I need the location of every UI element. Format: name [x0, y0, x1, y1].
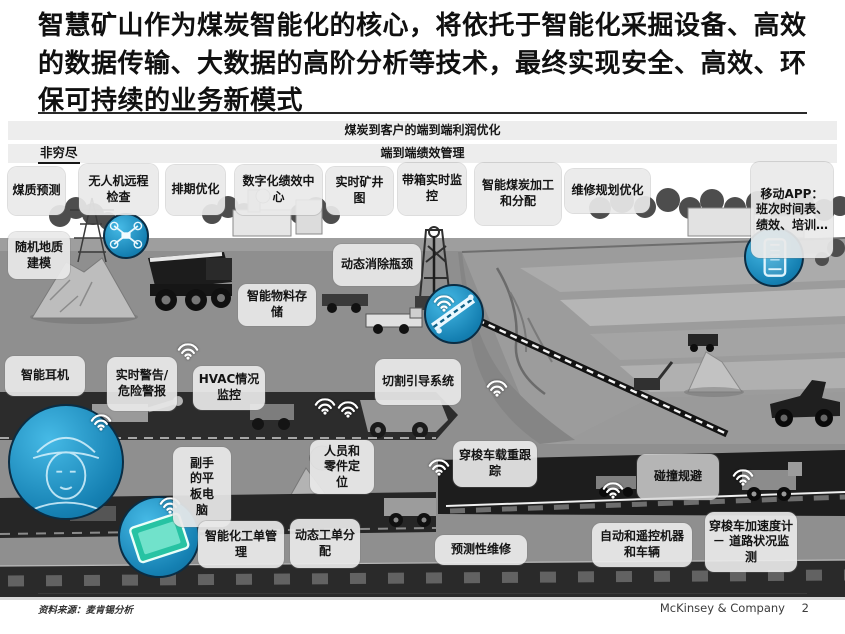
- callout-maintenance-planning: 维修规划优化: [565, 169, 650, 213]
- callout-predictive-maintenance: 预测性维修: [435, 535, 527, 565]
- callout-shuttle-accelerometer-road: 穿梭车加速度计 － 道路状况监测: [705, 512, 797, 572]
- callout-smart-headset: 智能耳机: [5, 356, 85, 396]
- callout-realtime-mine-map: 实时矿井图: [326, 167, 393, 215]
- callout-digital-performance-center: 数字化绩效中心: [235, 165, 322, 215]
- page-number: 2: [802, 601, 809, 615]
- not-exhaustive-note: 非穷尽: [38, 145, 80, 164]
- callout-hvac-monitoring: HVAC情况监控: [193, 366, 265, 410]
- wifi-icon: [177, 343, 199, 360]
- callout-smart-coal-processing: 智能煤炭加工和分配: [475, 163, 561, 225]
- source-note: 资料来源：麦肯锡分析: [38, 602, 133, 616]
- callout-scheduling-optimization: 排期优化: [166, 165, 225, 215]
- callout-coal-quality-prediction: 煤质预测: [8, 167, 65, 215]
- callout-personnel-parts-positioning: 人员和零件定位: [310, 440, 374, 494]
- callout-mobile-app: 移动APP：班次时间表、绩效、培训…: [751, 162, 833, 258]
- callout-dynamic-debottlenecking: 动态消除瓶颈: [333, 244, 421, 286]
- presentation-slide: 智慧矿山作为煤炭智能化的核心，将依托于智能化采掘设备、高效的数据传输、大数据的高…: [0, 0, 845, 634]
- drone-closeup: [103, 213, 149, 259]
- wifi-icon: [732, 469, 754, 486]
- callout-dynamic-workorder-dispatch: 动态工单分配: [290, 519, 360, 568]
- slide-title: 智慧矿山作为煤炭智能化的核心，将依托于智能化采掘设备、高效的数据传输、大数据的高…: [38, 8, 810, 121]
- wifi-icon: [602, 482, 624, 499]
- callout-drone-remote-inspection: 无人机远程检查: [79, 164, 158, 215]
- callout-cutting-guidance-system: 切割引导系统: [375, 359, 461, 405]
- callout-realtime-warning-alarm: 实时警告/危险警报: [107, 357, 177, 411]
- wifi-icon: [486, 380, 508, 397]
- callout-smart-material-storage: 智能物料存储: [238, 284, 316, 326]
- callout-assistant-tablet: 副手的平板电脑: [173, 447, 231, 527]
- callout-smart-workorder-management: 智能化工单管理: [198, 521, 284, 568]
- callout-auto-remote-machines-vehicles: 自动和遥控机器和车辆: [592, 523, 692, 567]
- wifi-icon: [428, 459, 450, 476]
- callout-belt-realtime-monitoring: 带箱实时监控: [398, 163, 466, 215]
- banner-profit-optimization: 煤炭到客户的端到端利润优化: [8, 121, 837, 140]
- callout-stochastic-geological-modeling: 随机地质建模: [8, 232, 70, 279]
- conveyor-closeup: [424, 284, 484, 344]
- wifi-icon: [433, 295, 455, 312]
- title-divider: [38, 112, 807, 114]
- callout-collision-avoidance: 碰撞规避: [637, 454, 719, 500]
- wifi-icon: [337, 401, 359, 418]
- banner-performance-management: 端到端绩效管理: [8, 144, 837, 163]
- wifi-icon: [90, 414, 112, 431]
- callout-shuttle-load-tracking: 穿梭车载重跟踪: [453, 441, 537, 487]
- footer-divider: [38, 593, 807, 594]
- wifi-icon: [314, 398, 336, 415]
- mckinsey-brand: McKinsey & Company: [660, 601, 785, 615]
